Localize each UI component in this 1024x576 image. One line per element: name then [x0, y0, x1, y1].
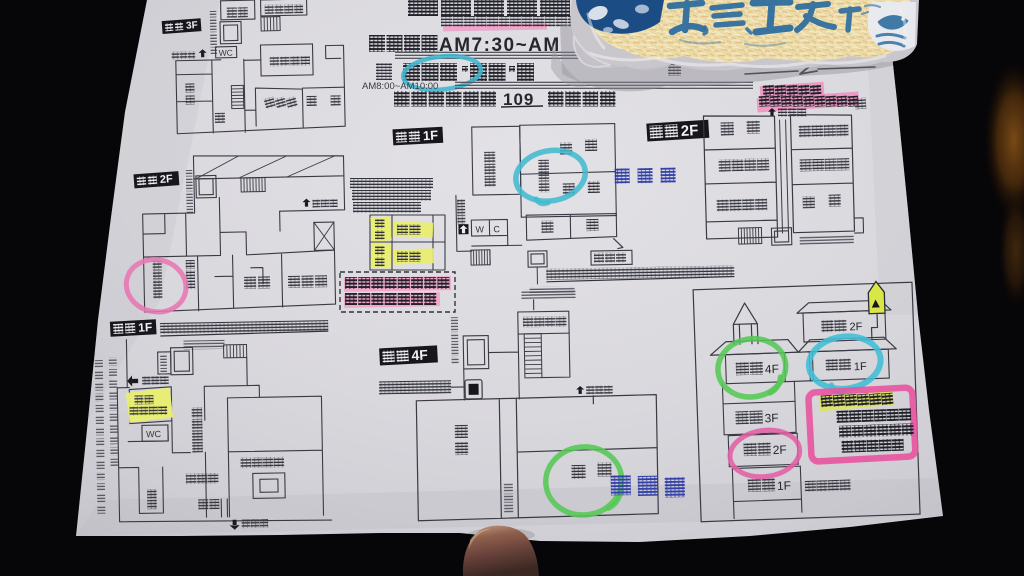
svg-text:3F: 3F: [764, 411, 778, 425]
svg-text:3F: 3F: [186, 20, 198, 32]
svg-text:4F: 4F: [411, 346, 429, 363]
svg-text:1F: 1F: [422, 127, 438, 143]
svg-text:2F: 2F: [772, 443, 786, 457]
svg-text:WC: WC: [219, 48, 233, 58]
svg-text:W: W: [475, 224, 484, 234]
svg-text:2F: 2F: [160, 173, 174, 186]
svg-text:2F: 2F: [680, 122, 699, 140]
svg-text:1F: 1F: [854, 361, 868, 373]
svg-text:1F: 1F: [138, 320, 153, 335]
svg-text:WC: WC: [146, 429, 162, 439]
svg-text:1F: 1F: [777, 479, 791, 493]
svg-text:C: C: [493, 224, 500, 234]
svg-text:4F: 4F: [765, 362, 779, 376]
svg-text:2F: 2F: [849, 321, 863, 333]
svg-text:AM8:00~AM10:00: AM8:00~AM10:00: [362, 81, 438, 92]
